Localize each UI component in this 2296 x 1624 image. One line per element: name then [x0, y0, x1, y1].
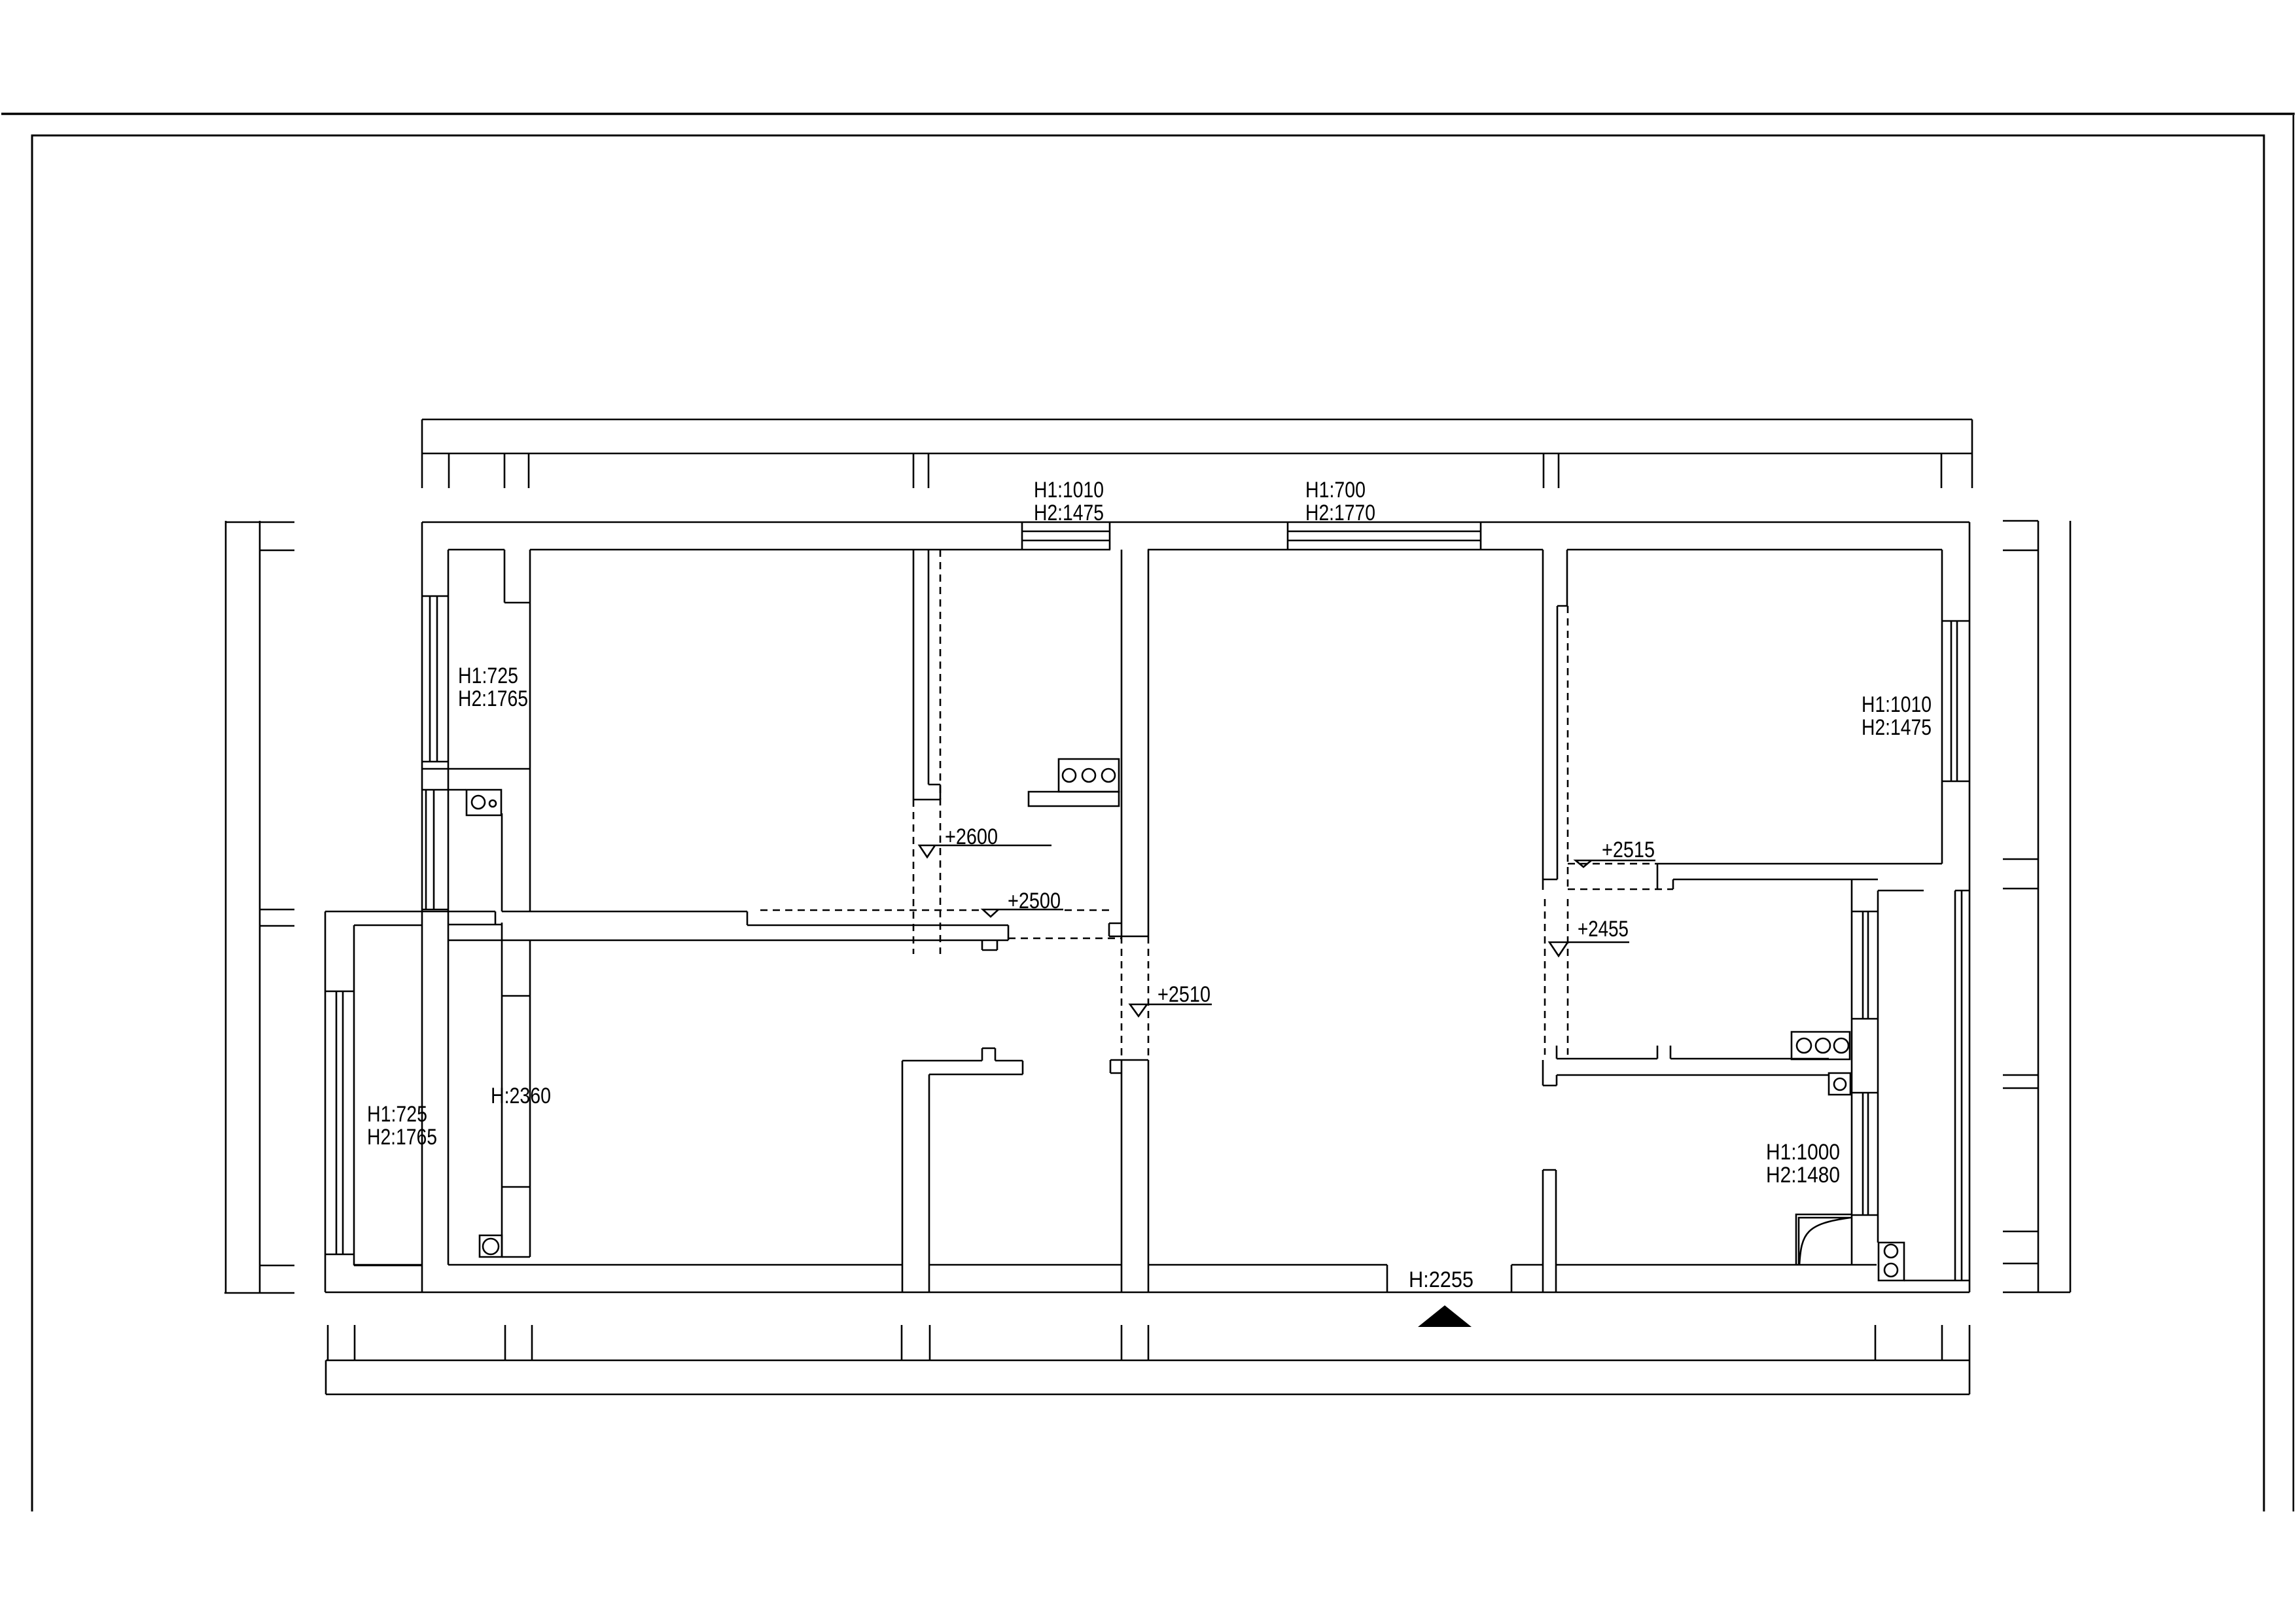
svg-text:H2:1765: H2:1765 [367, 1125, 437, 1150]
svg-text:H2:1770: H2:1770 [1305, 501, 1375, 525]
svg-text:H:2360: H:2360 [491, 1084, 551, 1108]
svg-text:H1:1010: H1:1010 [1034, 478, 1104, 503]
svg-text:H1:700: H1:700 [1305, 478, 1366, 503]
svg-text:H2:1765: H2:1765 [458, 686, 528, 711]
svg-text:H1:725: H1:725 [367, 1102, 427, 1127]
svg-text:+2515: +2515 [1602, 838, 1655, 862]
svg-text:H1:1010: H1:1010 [1862, 692, 1932, 717]
svg-text:H2:1475: H2:1475 [1862, 715, 1932, 740]
svg-text:H2:1475: H2:1475 [1034, 501, 1104, 525]
svg-text:H2:1480: H2:1480 [1766, 1163, 1840, 1188]
svg-text:+2455: +2455 [1578, 917, 1629, 942]
svg-text:+2510: +2510 [1157, 982, 1210, 1007]
svg-text:H1:1000: H1:1000 [1766, 1140, 1840, 1165]
svg-text:H1:725: H1:725 [458, 663, 518, 688]
svg-text:+2500: +2500 [1008, 889, 1061, 913]
svg-text:H:2255: H:2255 [1409, 1267, 1474, 1292]
svg-text:+2600: +2600 [945, 824, 998, 849]
